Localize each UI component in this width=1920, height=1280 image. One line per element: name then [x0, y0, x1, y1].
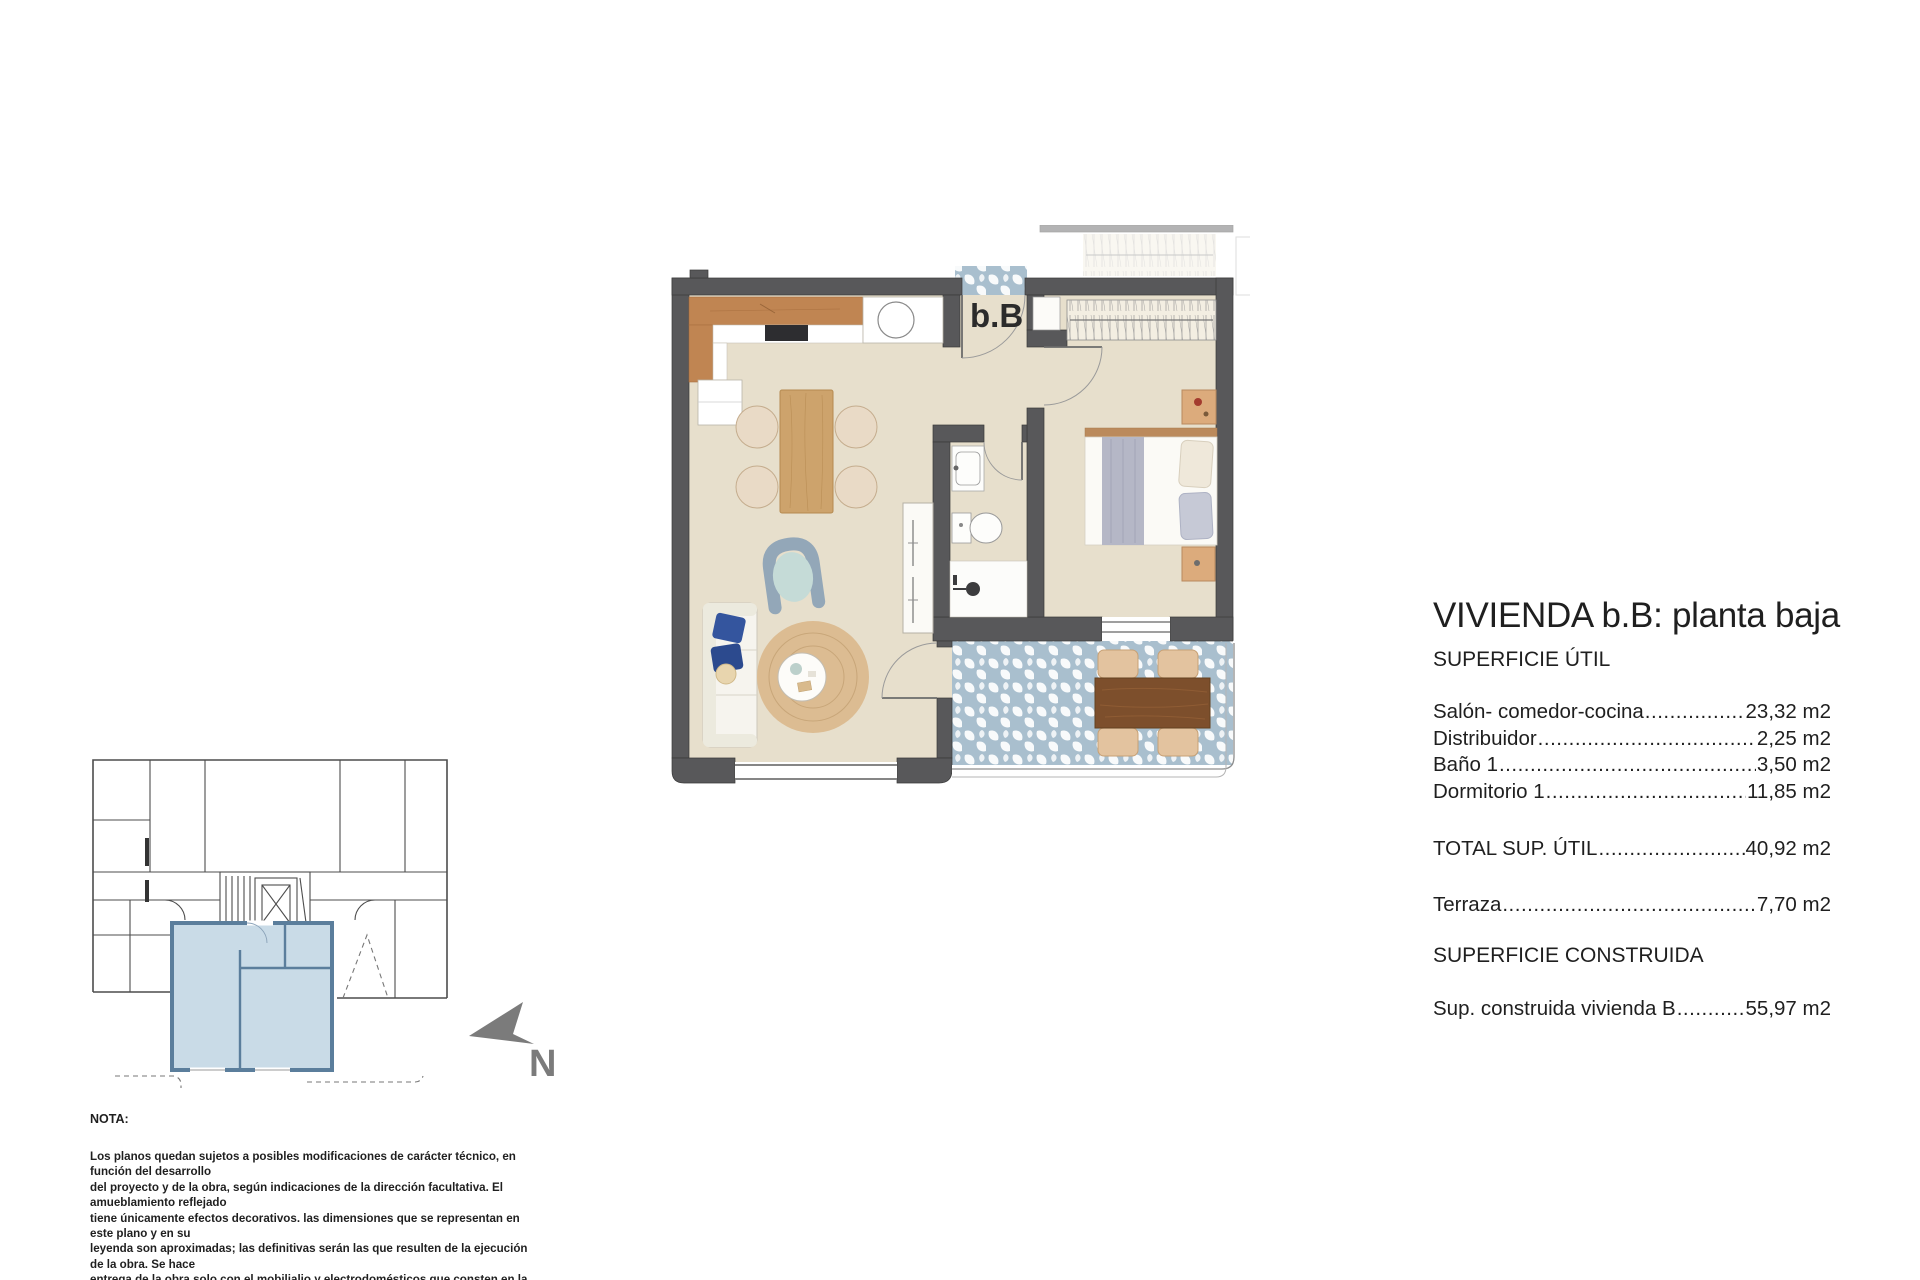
area-label: Terraza — [1433, 892, 1501, 919]
area-value: 23,32 m2 — [1746, 699, 1831, 726]
area-value: 2,25 m2 — [1757, 726, 1831, 753]
dot-leader — [1499, 752, 1756, 779]
note-line: leyenda son aproximadas; las definitivas… — [90, 1241, 530, 1272]
section-superficie-construida: SUPERFICIE CONSTRUIDA — [1433, 944, 1831, 968]
toilet — [970, 513, 1002, 543]
area-label: Salón- comedor-cocina — [1433, 699, 1644, 726]
terrace-chair — [1158, 650, 1198, 678]
key-plan: N — [85, 750, 585, 1100]
util-rows: Salón- comedor-cocina23,32 m2 Distribuid… — [1433, 699, 1831, 805]
note-line: entrega de la obra solo con el mobiliali… — [90, 1272, 530, 1280]
highlighted-unit — [172, 923, 332, 1070]
coffee-table — [778, 653, 826, 701]
bed-pillow — [1178, 440, 1213, 488]
area-label: Sup. construida vivienda B — [1433, 996, 1676, 1023]
rug — [757, 621, 869, 733]
dot-leader — [1645, 699, 1745, 726]
area-row-salon: Salón- comedor-cocina23,32 m2 — [1433, 699, 1831, 726]
dot-leader — [1546, 779, 1746, 806]
dot-leader — [1598, 836, 1744, 863]
north-arrow-icon — [469, 1002, 534, 1044]
toilet-tank — [952, 513, 971, 543]
dining-table — [780, 390, 833, 513]
pillow — [716, 664, 736, 684]
area-value: 40,92 m2 — [1746, 836, 1831, 863]
area-label: Distribuidor — [1433, 726, 1537, 753]
bed-pillow — [1179, 492, 1213, 540]
terrace-table — [1095, 678, 1210, 728]
dot-leader — [1677, 996, 1745, 1023]
note-line: tiene únicamente efectos decorativos. la… — [90, 1211, 530, 1242]
area-value: 11,85 m2 — [1747, 779, 1831, 806]
north-arrow: N — [469, 1002, 556, 1085]
door-marker — [145, 880, 149, 902]
area-label: TOTAL SUP. ÚTIL — [1433, 836, 1597, 863]
note-line: Los planos quedan sujetos a posibles mod… — [90, 1149, 530, 1180]
sink — [878, 302, 914, 338]
area-label: Dormitorio 1 — [1433, 779, 1545, 806]
terrace-chair — [1098, 728, 1138, 756]
cooktop — [765, 325, 808, 341]
bed-headboard — [1085, 428, 1217, 437]
area-value: 55,97 m2 — [1746, 996, 1831, 1023]
note-heading: NOTA: — [90, 1112, 530, 1126]
entry-walkway-tiles — [955, 266, 1027, 295]
north-label: N — [529, 1043, 556, 1085]
area-value: 3,50 m2 — [1757, 752, 1831, 779]
shower-head — [966, 582, 980, 596]
page-title: VIVIENDA b.B: planta baja — [1433, 596, 1831, 636]
plan-sheet: b.B — [0, 0, 1920, 1280]
area-row-bano: Baño 13,50 m2 — [1433, 752, 1831, 779]
terrace-chair — [1098, 650, 1138, 678]
area-row-distribuidor: Distribuidor2,25 m2 — [1433, 726, 1831, 753]
entry-closet — [1033, 297, 1060, 330]
bedroom-window — [1102, 617, 1170, 641]
door-marker — [145, 838, 149, 866]
section-superficie-util: SUPERFICIE ÚTIL — [1433, 648, 1831, 672]
dot-leader — [1538, 726, 1756, 753]
sofa — [703, 603, 757, 747]
note-block: NOTA: Los planos quedan sujetos a posibl… — [90, 1112, 530, 1280]
area-row-terraza: Terraza7,70 m2 — [1433, 892, 1831, 919]
area-value: 7,70 m2 — [1757, 892, 1831, 919]
terrace-chair — [1158, 728, 1198, 756]
appliance — [698, 380, 742, 425]
dot-leader — [1502, 892, 1756, 919]
area-legend: VIVIENDA b.B: planta baja SUPERFICIE ÚTI… — [1433, 596, 1831, 1023]
sideboard — [903, 503, 933, 633]
area-row-total: TOTAL SUP. ÚTIL40,92 m2 — [1433, 836, 1831, 863]
floor-plan: b.B — [650, 225, 1250, 800]
note-line: del proyecto y de la obra, según indicac… — [90, 1180, 530, 1211]
area-row-dormitorio: Dormitorio 111,85 m2 — [1433, 779, 1831, 806]
nightstand — [1182, 390, 1216, 424]
unit-label: b.B — [970, 297, 1023, 334]
area-row-construida: Sup. construida vivienda B55,97 m2 — [1433, 996, 1831, 1023]
area-label: Baño 1 — [1433, 752, 1498, 779]
